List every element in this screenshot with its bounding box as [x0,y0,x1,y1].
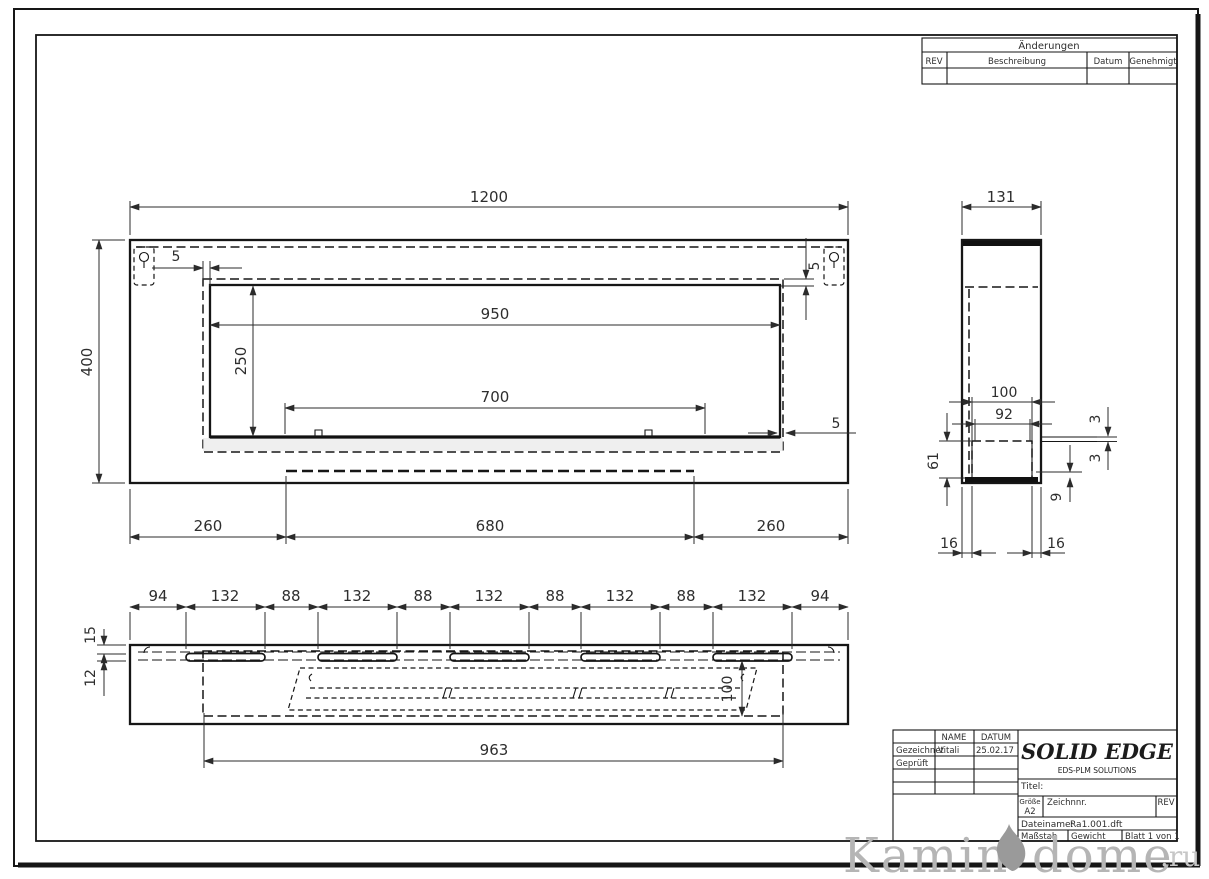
dim-seg-0: 94 [148,587,167,605]
dim-front-gap-right: 5 [832,416,841,432]
changes-col-description: Beschreibung [988,57,1046,67]
dim-front-burner-width: 700 [481,388,510,406]
dim-front-total-width: 1200 [470,188,508,206]
title-block-drawn-name: Vitali [938,746,959,756]
dim-seg-10: 94 [810,587,829,605]
dim-side-thickness-bottom: 3 [1088,454,1104,463]
watermark-word2: dome [1032,828,1174,879]
title-block-name-col: NAME [942,733,967,743]
dim-front-inset-left: 5 [172,249,181,265]
changes-title: Änderungen [1018,39,1079,52]
title-label: Titel: [1020,782,1043,792]
watermark-word1: Kamin [843,828,1009,879]
dim-seg-8: 88 [676,587,695,605]
drawing-no-label: Zeichnnr. [1047,798,1087,808]
dim-front-opening-width: 950 [481,305,510,323]
dim-front-opening-height: 250 [232,347,250,376]
dim-seg-5: 132 [475,587,504,605]
dim-side-offset-left: 16 [940,536,958,552]
size-value: A2 [1024,807,1035,817]
side-bottom-panel [965,477,1038,483]
dim-seg-7: 132 [606,587,635,605]
dim-seg-1: 132 [211,587,240,605]
title-block-checked-label: Geprüft [896,759,929,769]
dim-side-depth: 131 [987,188,1016,206]
dim-side-offset-right: 16 [1047,536,1065,552]
dim-side-lip: 9 [1049,493,1065,502]
dim-side-channel-inner: 92 [995,407,1013,423]
title-block-drawn-date: 25.02.17 [976,746,1014,756]
changes-col-approved: Genehmigt [1129,57,1177,67]
dim-seg-4: 88 [413,587,432,605]
dim-seg-6: 88 [545,587,564,605]
dim-bottom-slot-width: 12 [83,669,99,687]
dim-bottom-edge-offset: 15 [83,626,99,644]
dim-seg-2: 88 [281,587,300,605]
dim-side-channel-outer: 100 [991,385,1018,401]
dim-bottom-channel-depth: 100 [720,676,736,703]
dim-front-bottom-center: 680 [476,517,505,535]
changes-col-date: Datum [1094,57,1123,67]
dim-seg-9: 132 [738,587,767,605]
dim-front-bottom-left: 260 [194,517,223,535]
drawing-sheet: Änderungen REV Beschreibung Datum Genehm… [0,0,1209,879]
dim-side-thickness-top: 3 [1088,415,1104,424]
dim-front-total-height: 400 [78,348,96,377]
dim-front-bottom-right: 260 [757,517,786,535]
dim-front-inset-right: 5 [807,262,823,271]
solid-edge-sub: EDS-PLM SOLUTIONS [1058,766,1137,775]
dim-side-channel-height: 61 [926,452,942,470]
title-block-date-col: DATUM [981,733,1011,743]
size-label: Größe [1019,798,1040,806]
dim-bottom-opening-length: 963 [480,741,509,759]
watermark-tld: .ru [1160,840,1200,873]
solid-edge-logo: SOLID EDGE [1021,739,1174,764]
changes-col-rev: REV [925,57,942,67]
side-top-panel [963,241,1040,246]
rev-label: REV [1157,798,1174,808]
dim-seg-3: 132 [343,587,372,605]
